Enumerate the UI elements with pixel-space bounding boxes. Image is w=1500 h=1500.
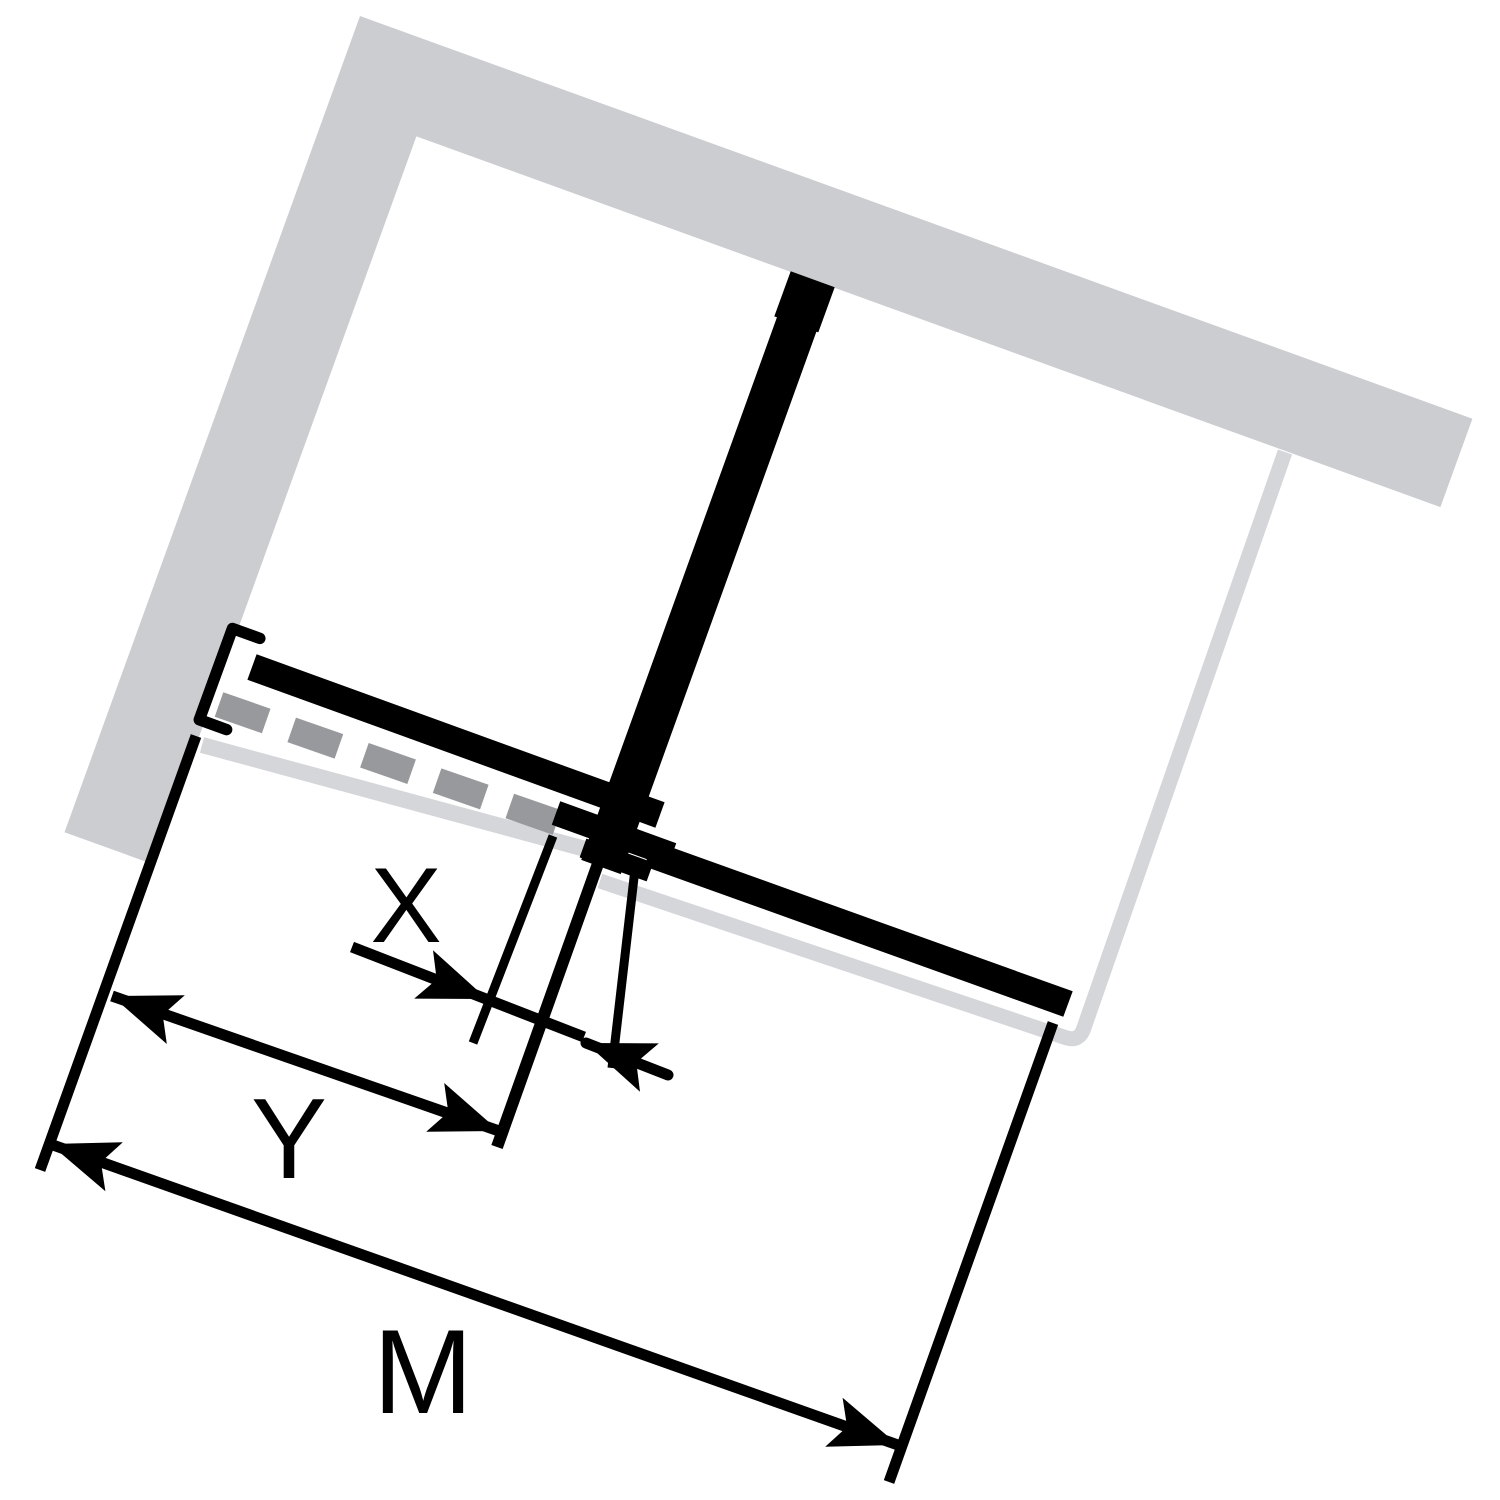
svg-text:X: X bbox=[370, 845, 441, 965]
svg-text:Y: Y bbox=[251, 1076, 327, 1203]
svg-text:M: M bbox=[373, 1305, 473, 1439]
